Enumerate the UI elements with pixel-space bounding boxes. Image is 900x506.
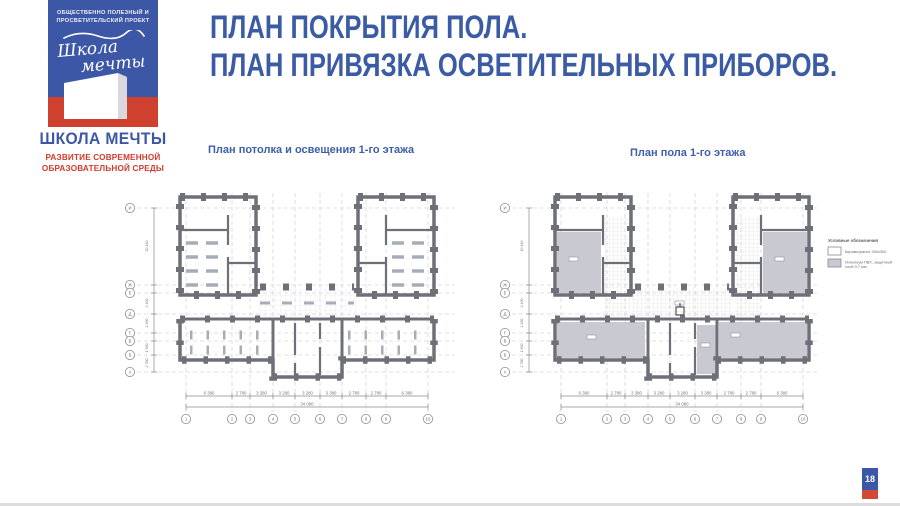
logo-caption: ОБЩЕСТВЕННО ПОЛЕЗНЫЙ И ПРОСВЕТИТЕЛЬСКИЙ … bbox=[48, 9, 158, 25]
side-dim-label: 2 400 bbox=[520, 299, 524, 308]
floor-plan-caption: План пола 1-го этажа bbox=[630, 147, 745, 159]
total-dim-label: 34 080 bbox=[300, 401, 314, 406]
page-title-line2: ПЛАН ПРИВЯЗКА ОСВЕТИТЕЛЬНЫХ ПРИБОРОВ. bbox=[210, 46, 837, 84]
side-dim-label: 2 450 bbox=[520, 319, 524, 328]
side-dim-label: 2 400 bbox=[145, 299, 149, 308]
axis-letter: Ж bbox=[128, 283, 132, 288]
page-number: 18 bbox=[862, 468, 878, 490]
legend: Условные обозначения Керамогранит 300х30… bbox=[828, 238, 892, 269]
axis-number: 10 bbox=[801, 417, 806, 422]
axis-letter: Е bbox=[129, 291, 132, 296]
dim-label: 3 380 bbox=[256, 390, 267, 395]
axis-letter: И bbox=[128, 206, 131, 211]
dim-label: 6 380 bbox=[402, 390, 413, 395]
school-building-icon bbox=[48, 67, 158, 127]
org-tagline-line2: ОБРАЗОВАТЕЛЬНОЙ СРЕДЫ bbox=[34, 163, 173, 174]
legend-title: Условные обозначения bbox=[828, 238, 879, 243]
dim-label: 2 780 bbox=[746, 390, 757, 395]
page-title: ПЛАН ПОКРЫТИЯ ПОЛА. ПЛАН ПРИВЯЗКА ОСВЕТИ… bbox=[210, 8, 837, 84]
logo-caption-line2: ПРОСВЕТИТЕЛЬСКИЙ ПРОЕКТ bbox=[48, 17, 158, 25]
ceiling-plan-caption: План потолка и освещения 1-го этажа bbox=[208, 144, 414, 156]
legend-swatch-tile bbox=[828, 247, 841, 255]
axis-letter: Е bbox=[504, 291, 507, 296]
dim-label: 2 780 bbox=[349, 390, 360, 395]
walls bbox=[180, 197, 434, 377]
axis-letter: Д bbox=[504, 312, 507, 317]
dim-label: 3 380 bbox=[631, 390, 642, 395]
org-tagline-line1: РАЗВИТИЕ СОВРЕМЕННОЙ bbox=[34, 152, 173, 163]
axis-letter: В bbox=[504, 339, 507, 344]
axis-letter: А bbox=[504, 370, 507, 375]
axis-number: 10 bbox=[426, 417, 431, 422]
org-name: ШКОЛА МЕЧТЫ bbox=[36, 129, 170, 149]
dim-label: 6 380 bbox=[777, 390, 788, 395]
logo-caption-line1: ОБЩЕСТВЕННО ПОЛЕЗНЫЙ И bbox=[48, 9, 158, 17]
axis-letter: Б bbox=[129, 353, 132, 358]
side-dim-label: 2 450 bbox=[145, 319, 149, 328]
ceiling-lighting-plan-drawing: 6 380 2 780 3 380 3 280 3 280 3 380 2 78… bbox=[110, 175, 490, 430]
dimension-labels: 6 380 2 780 3 380 3 280 3 280 3 380 2 78… bbox=[145, 241, 413, 407]
side-dim-label: 2 780 bbox=[145, 359, 149, 368]
page-title-line1: ПЛАН ПОКРЫТИЯ ПОЛА. bbox=[210, 8, 837, 46]
logo: ОБЩЕСТВЕННО ПОЛЕЗНЫЙ И ПРОСВЕТИТЕЛЬСКИЙ … bbox=[48, 0, 158, 127]
dim-label: 2 780 bbox=[724, 390, 735, 395]
dim-label: 2 780 bbox=[371, 390, 382, 395]
dim-label: 6 380 bbox=[204, 390, 215, 395]
total-dim-label: 34 080 bbox=[675, 401, 689, 406]
axis-letter: И bbox=[503, 206, 506, 211]
dim-label: 2 780 bbox=[611, 390, 622, 395]
dim-label: 3 280 bbox=[654, 390, 665, 395]
axis-letter: А bbox=[129, 370, 132, 375]
dim-label: 3 380 bbox=[326, 390, 337, 395]
axis-letter: Б bbox=[504, 353, 507, 358]
side-dim-label: 2 780 bbox=[520, 359, 524, 368]
axis-letter: Д bbox=[129, 312, 132, 317]
axis-letter: В bbox=[129, 339, 132, 344]
org-tagline: РАЗВИТИЕ СОВРЕМЕННОЙ ОБРАЗОВАТЕЛЬНОЙ СРЕ… bbox=[34, 152, 173, 174]
legend-item2-label-line2: слой 0,7 мм bbox=[845, 264, 867, 269]
dim-label: 6 380 bbox=[579, 390, 590, 395]
slide: ОБЩЕСТВЕННО ПОЛЕЗНЫЙ И ПРОСВЕТИТЕЛЬСКИЙ … bbox=[0, 0, 900, 506]
side-dim-label: 10 140 bbox=[520, 241, 524, 252]
dim-label: 3 280 bbox=[279, 390, 290, 395]
dim-label: 3 280 bbox=[302, 390, 313, 395]
axis-letter: Ж bbox=[503, 283, 507, 288]
side-dim-label: 10 140 bbox=[145, 241, 149, 252]
dim-label: 3 380 bbox=[701, 390, 712, 395]
dim-label: 2 780 bbox=[236, 390, 247, 395]
side-dim-label: 1 930 bbox=[520, 344, 524, 353]
legend-swatch-linoleum bbox=[828, 259, 841, 267]
floor-covering-plan-drawing: 6 380 2 780 3 380 3 280 3 280 3 380 2 78… bbox=[485, 175, 900, 430]
side-dim-label: 1 930 bbox=[145, 344, 149, 353]
legend-item1-label: Керамогранит 300х300 bbox=[845, 249, 887, 254]
dim-label: 3 280 bbox=[677, 390, 688, 395]
page-number-badge: 18 bbox=[862, 468, 878, 499]
page-badge-red-strip bbox=[862, 490, 878, 499]
